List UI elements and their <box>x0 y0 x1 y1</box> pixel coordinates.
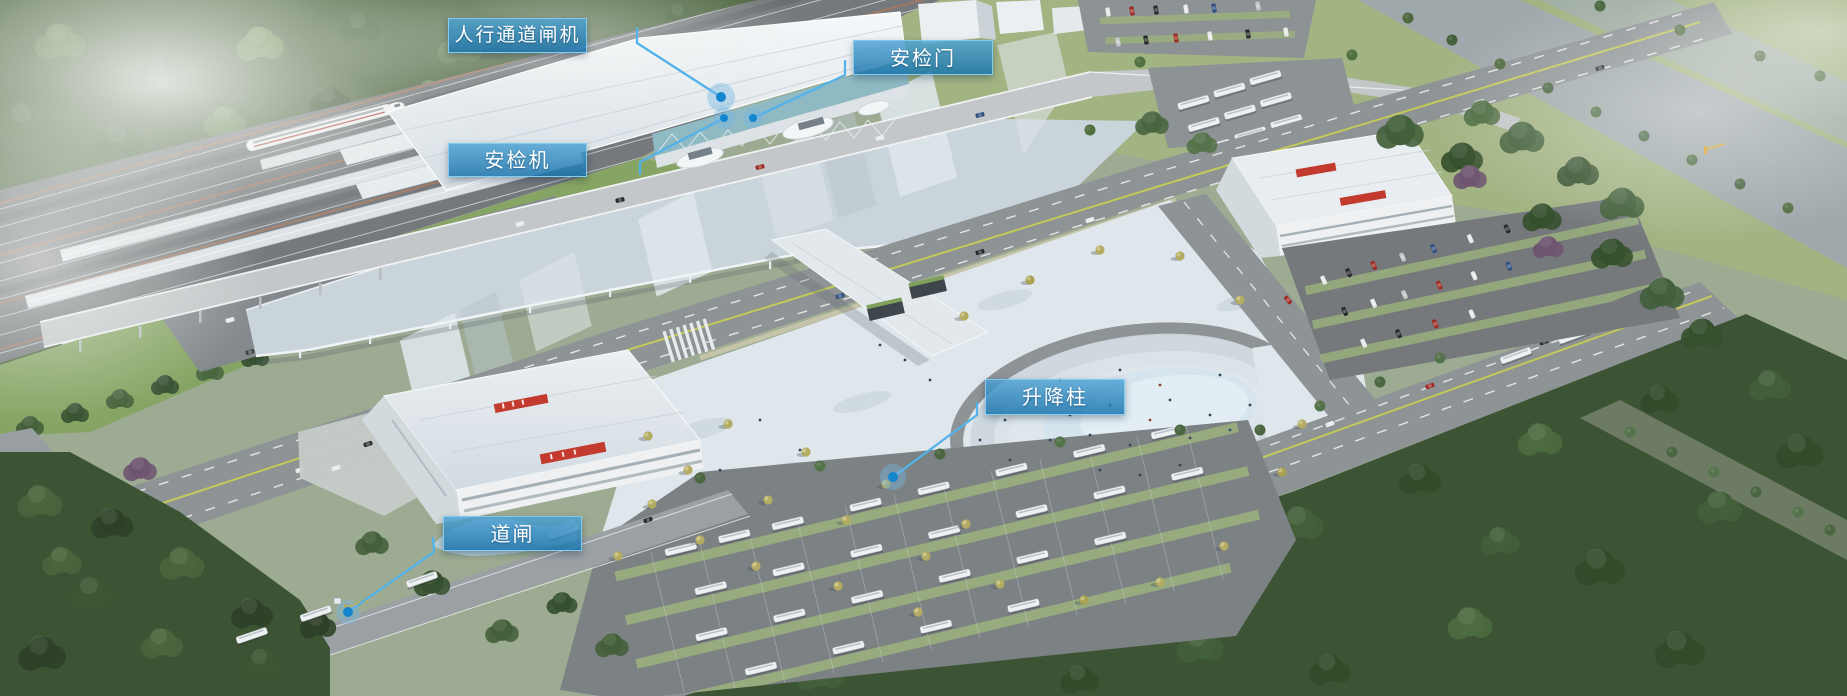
station-aerial-render <box>0 0 1847 696</box>
callout-lifting-bollard[interactable]: 升降柱 <box>985 379 1125 415</box>
callout-road-barrier[interactable]: 道闸 <box>443 516 582 551</box>
northeast-car-park <box>1078 0 1316 58</box>
callout-security-gate[interactable]: 安检门 <box>853 40 993 75</box>
callout-pedestrian-turnstile[interactable]: 人行通道闸机 <box>448 18 587 53</box>
callout-xray-scanner[interactable]: 安检机 <box>448 143 587 177</box>
hero-aerial-banner: 人行通道闸机 安检门 安检机 升降柱 道闸 <box>0 0 1847 696</box>
